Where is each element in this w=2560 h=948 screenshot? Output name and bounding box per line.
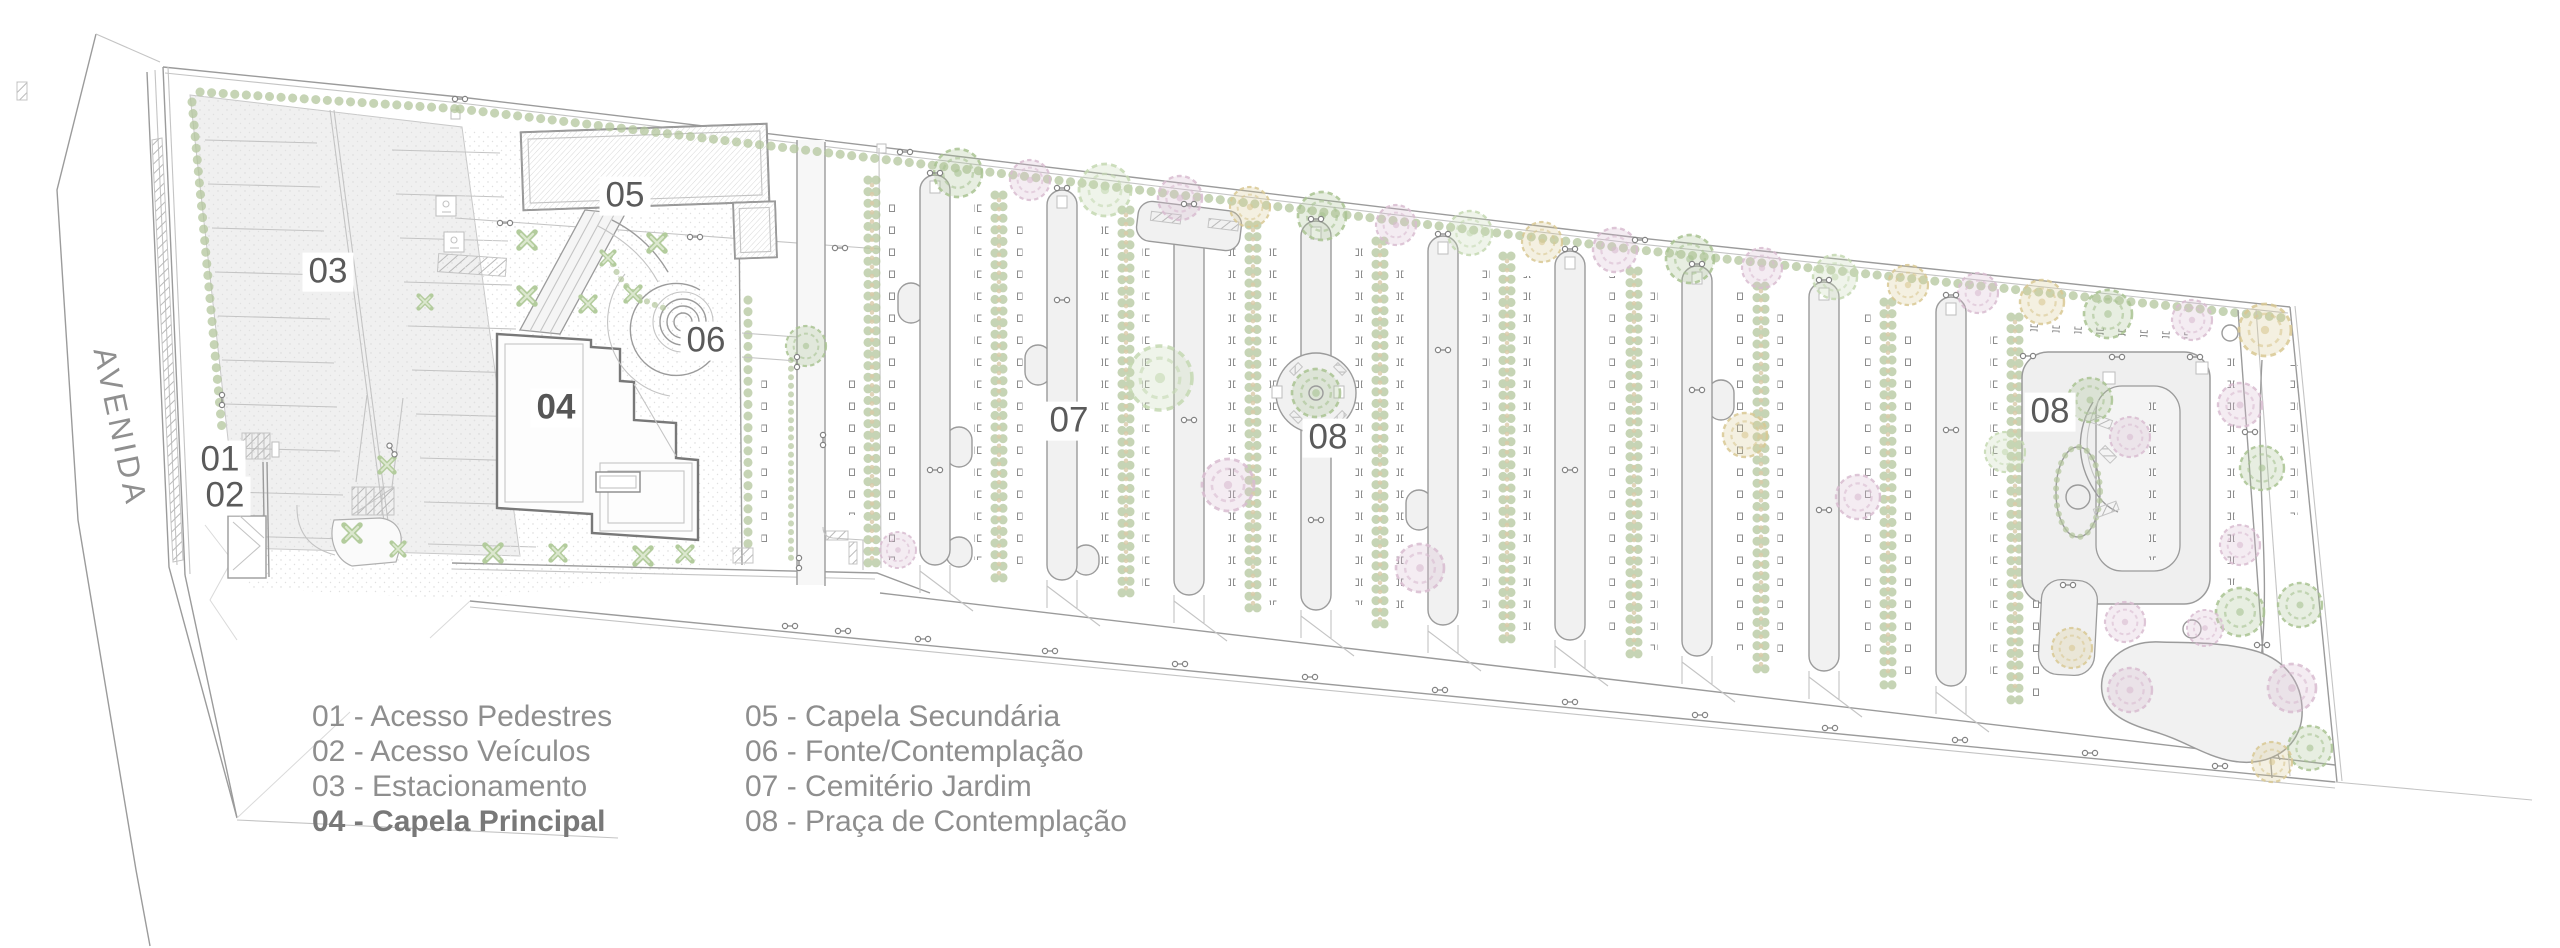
plan-marker-08-praca: 08: [2025, 393, 2076, 432]
legend-column-1: 01 - Acesso Pedestres 02 - Acesso Veícul…: [312, 699, 745, 839]
vehicle-ramp: [228, 516, 266, 578]
legend-item-08: 08 - Praça de Contemplação: [745, 804, 1127, 839]
plan-marker-01: 01: [195, 441, 246, 480]
plan-marker-05: 05: [600, 177, 651, 216]
grave-rows: [762, 200, 2188, 680]
plan-marker-02: 02: [200, 477, 251, 516]
plan-marker-08-circle: 08: [1303, 419, 1354, 458]
legend-item-03: 03 - Estacionamento: [312, 769, 745, 804]
chapel-annex: [733, 201, 777, 258]
sidewalk-hatch: [152, 138, 183, 562]
plan-marker-06: 06: [681, 322, 732, 361]
plan-marker-07: 07: [1044, 402, 1095, 441]
plan-marker-03: 03: [303, 253, 354, 292]
legend-item-04: 04 - Capela Principal: [312, 804, 745, 839]
legend: 01 - Acesso Pedestres 02 - Acesso Veícul…: [312, 699, 1127, 839]
legend-item-05: 05 - Capela Secundária: [745, 699, 1127, 734]
legend-column-2: 05 - Capela Secundária 06 - Fonte/Contem…: [745, 699, 1127, 839]
legend-item-02: 02 - Acesso Veículos: [312, 734, 745, 769]
legend-item-01: 01 - Acesso Pedestres: [312, 699, 745, 734]
site-plan-page: AVENIDA 01 02 03 04 05 06 07 08 08 01 - …: [0, 0, 2560, 948]
legend-item-07: 07 - Cemitério Jardim: [745, 769, 1127, 804]
legend-item-06: 06 - Fonte/Contemplação: [745, 734, 1127, 769]
plan-marker-04: 04: [531, 389, 582, 428]
